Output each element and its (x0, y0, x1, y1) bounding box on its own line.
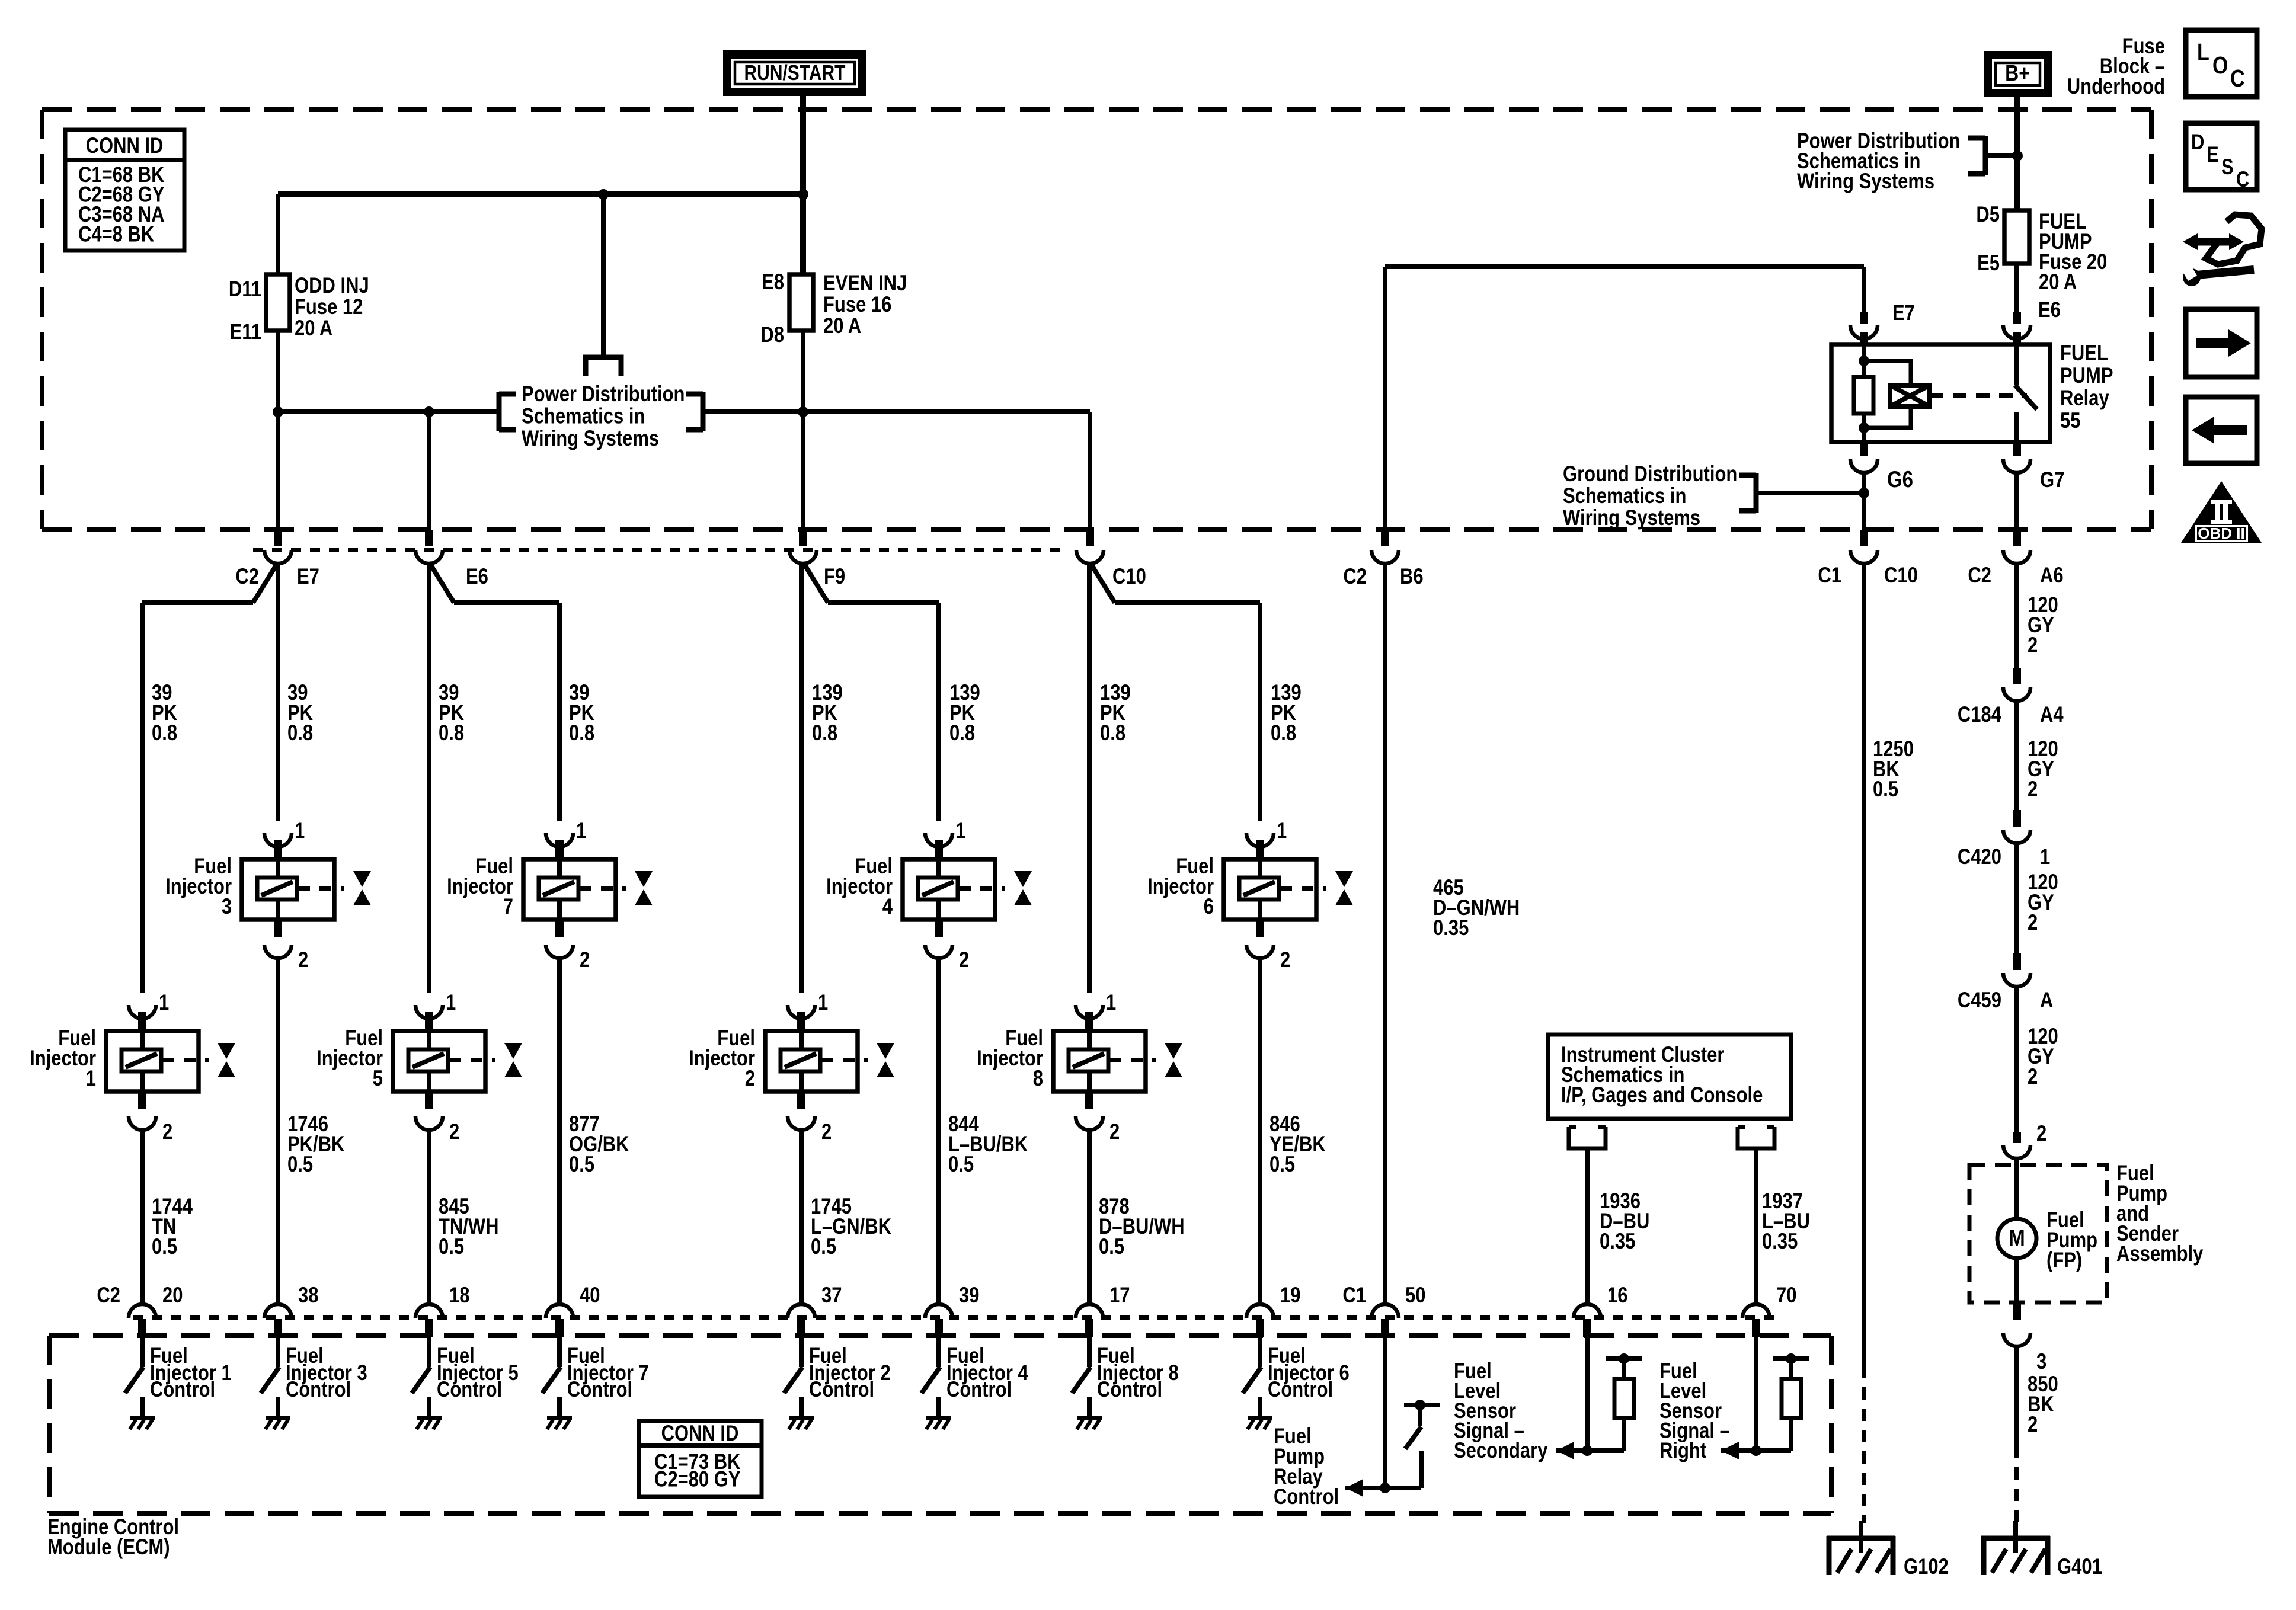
svg-text:0.5: 0.5 (1269, 1153, 1295, 1177)
svg-text:I/P, Gages and Console: I/P, Gages and Console (1561, 1083, 1763, 1108)
svg-text:16: 16 (1607, 1283, 1627, 1308)
svg-text:Schematics in: Schematics in (1563, 484, 1686, 508)
svg-text:2: 2 (2028, 1413, 2038, 1437)
svg-text:D8: D8 (760, 323, 784, 347)
svg-text:E7: E7 (297, 565, 319, 589)
svg-text:1: 1 (159, 991, 169, 1015)
svg-text:C1: C1 (1342, 1283, 1366, 1308)
svg-text:0.8: 0.8 (152, 721, 177, 745)
svg-text:ODD INJ: ODD INJ (295, 274, 369, 298)
svg-text:6: 6 (1204, 895, 1214, 919)
svg-text:O: O (2212, 52, 2228, 78)
svg-text:A4: A4 (2040, 703, 2064, 727)
svg-text:2: 2 (2028, 911, 2038, 935)
svg-text:0.5: 0.5 (287, 1153, 313, 1177)
svg-text:C10: C10 (1112, 565, 1146, 589)
svg-text:2: 2 (745, 1067, 755, 1091)
svg-text:2: 2 (2028, 777, 2038, 802)
svg-text:(FP): (FP) (2046, 1249, 2082, 1273)
svg-text:2: 2 (1109, 1120, 1120, 1144)
svg-text:40: 40 (580, 1283, 600, 1308)
svg-text:M: M (2009, 1224, 2025, 1250)
svg-text:E8: E8 (762, 270, 784, 295)
svg-text:8: 8 (1033, 1067, 1043, 1091)
svg-text:1: 1 (576, 819, 586, 843)
svg-text:Secondary: Secondary (1454, 1439, 1547, 1463)
svg-text:1: 1 (2040, 845, 2050, 869)
svg-text:20 A: 20 A (823, 314, 861, 338)
svg-text:G102: G102 (1904, 1555, 1949, 1579)
svg-text:C2: C2 (1968, 564, 1991, 588)
svg-text:0.5: 0.5 (948, 1153, 974, 1177)
svg-text:37: 37 (821, 1283, 842, 1308)
svg-text:1: 1 (1106, 991, 1116, 1015)
svg-text:1: 1 (86, 1067, 96, 1091)
svg-text:OBD II: OBD II (2198, 524, 2244, 542)
svg-text:20 A: 20 A (295, 316, 332, 341)
svg-text:0.8: 0.8 (1100, 721, 1125, 745)
svg-text:Power Distribution: Power Distribution (522, 382, 685, 406)
svg-text:C: C (2236, 168, 2249, 192)
svg-text:2: 2 (2028, 633, 2038, 658)
svg-text:2: 2 (449, 1120, 459, 1144)
svg-text:0.8: 0.8 (439, 721, 464, 745)
svg-text:2: 2 (162, 1120, 172, 1144)
svg-text:1: 1 (295, 819, 305, 843)
svg-text:E5: E5 (1977, 251, 2000, 276)
svg-text:3: 3 (222, 895, 232, 919)
svg-text:2: 2 (2028, 1065, 2038, 1089)
svg-text:Control: Control (437, 1378, 502, 1402)
svg-text:Control: Control (809, 1378, 874, 1402)
svg-text:0.5: 0.5 (569, 1153, 594, 1177)
svg-text:18: 18 (449, 1283, 469, 1308)
svg-text:0.5: 0.5 (1873, 777, 1898, 802)
svg-text:0.8: 0.8 (287, 721, 313, 745)
svg-text:E11: E11 (230, 320, 261, 344)
svg-text:17: 17 (1109, 1283, 1130, 1308)
svg-text:2: 2 (298, 948, 308, 972)
svg-text:FUEL: FUEL (2060, 341, 2108, 366)
svg-text:B6: B6 (1400, 565, 1424, 589)
svg-text:2: 2 (580, 948, 590, 972)
svg-text:RUN/START: RUN/START (744, 61, 846, 85)
svg-text:Control: Control (1097, 1378, 1162, 1402)
svg-text:0.35: 0.35 (1600, 1230, 1635, 1254)
svg-text:38: 38 (298, 1283, 318, 1308)
svg-text:4: 4 (882, 895, 893, 919)
svg-text:E: E (2207, 143, 2219, 167)
svg-text:L: L (2197, 39, 2209, 65)
svg-text:Control: Control (1268, 1378, 1333, 1402)
svg-text:CONN ID: CONN ID (86, 134, 164, 158)
svg-text:A: A (2040, 988, 2053, 1013)
svg-text:G401: G401 (2057, 1555, 2102, 1579)
svg-text:55: 55 (2060, 409, 2080, 433)
svg-text:2: 2 (821, 1120, 832, 1144)
svg-text:2: 2 (959, 948, 969, 972)
svg-text:S: S (2221, 155, 2234, 180)
svg-text:1: 1 (446, 991, 456, 1015)
svg-text:G6: G6 (1887, 466, 1913, 492)
svg-text:C2: C2 (1343, 565, 1367, 589)
svg-text:7: 7 (503, 895, 513, 919)
svg-text:Wiring Systems: Wiring Systems (522, 427, 659, 451)
svg-text:G7: G7 (2040, 468, 2064, 492)
svg-text:2: 2 (1280, 948, 1290, 972)
svg-text:Wiring Systems: Wiring Systems (1563, 506, 1700, 530)
svg-text:5: 5 (373, 1067, 383, 1091)
svg-text:Assembly: Assembly (2116, 1242, 2203, 1266)
svg-text:Control: Control (946, 1378, 1012, 1402)
svg-text:C420: C420 (1958, 845, 2001, 869)
svg-text:Underhood: Underhood (2067, 75, 2165, 99)
svg-text:20: 20 (162, 1283, 183, 1308)
svg-text:D: D (2191, 130, 2204, 155)
svg-text:0.8: 0.8 (949, 721, 975, 745)
svg-text:Schematics in: Schematics in (522, 404, 645, 428)
svg-text:0.8: 0.8 (812, 721, 837, 745)
svg-text:Ground Distribution: Ground Distribution (1563, 462, 1737, 486)
svg-text:0.5: 0.5 (1099, 1235, 1124, 1259)
svg-text:Control: Control (1274, 1485, 1339, 1509)
svg-text:C10: C10 (1884, 564, 1918, 588)
svg-text:0.8: 0.8 (569, 721, 594, 745)
svg-text:C2: C2 (97, 1283, 120, 1308)
svg-text:C459: C459 (1958, 988, 2001, 1013)
svg-text:Relay: Relay (2060, 386, 2109, 411)
svg-text:C: C (2230, 65, 2245, 91)
svg-text:0.35: 0.35 (1762, 1230, 1798, 1254)
svg-text:E6: E6 (466, 565, 488, 589)
svg-text:Control: Control (567, 1378, 632, 1402)
svg-text:Module (ECM): Module (ECM) (47, 1535, 170, 1560)
svg-text:19: 19 (1280, 1283, 1300, 1308)
svg-text:0.8: 0.8 (1271, 721, 1296, 745)
svg-text:Control: Control (150, 1378, 215, 1402)
svg-text:0.35: 0.35 (1433, 916, 1469, 940)
svg-text:Right: Right (1659, 1439, 1706, 1463)
svg-text:CONN ID: CONN ID (661, 1422, 739, 1446)
svg-text:C2: C2 (235, 565, 259, 589)
svg-text:A6: A6 (2040, 564, 2064, 588)
svg-text:50: 50 (1405, 1283, 1425, 1308)
svg-text:C1: C1 (1818, 564, 1841, 588)
svg-text:1: 1 (818, 991, 828, 1015)
svg-text:Wiring Systems: Wiring Systems (1797, 169, 1934, 194)
svg-text:39: 39 (959, 1283, 979, 1308)
svg-text:C4=8 BK: C4=8 BK (78, 222, 155, 247)
svg-text:C184: C184 (1958, 703, 2001, 727)
svg-text:20 A: 20 A (2039, 270, 2077, 295)
svg-text:0.5: 0.5 (811, 1235, 836, 1259)
svg-text:B+: B+ (2005, 60, 2030, 85)
svg-text:D11: D11 (229, 277, 261, 302)
svg-text:3: 3 (2036, 1350, 2046, 1374)
svg-text:D5: D5 (1976, 203, 2000, 227)
svg-text:2: 2 (2036, 1122, 2046, 1146)
svg-text:E7: E7 (1892, 301, 1915, 325)
svg-text:Fuse 12: Fuse 12 (295, 295, 363, 319)
svg-text:1: 1 (1277, 819, 1287, 843)
svg-text:Fuse 16: Fuse 16 (823, 293, 891, 317)
svg-text:0.5: 0.5 (152, 1235, 177, 1259)
svg-text:0.5: 0.5 (439, 1235, 464, 1259)
svg-text:PUMP: PUMP (2060, 364, 2113, 388)
svg-text:E6: E6 (2038, 298, 2061, 322)
svg-text:F9: F9 (824, 565, 845, 589)
svg-text:1: 1 (955, 819, 965, 843)
svg-text:C2=80 GY: C2=80 GY (654, 1467, 741, 1491)
svg-text:EVEN INJ: EVEN INJ (823, 271, 907, 296)
svg-text:Control: Control (286, 1378, 351, 1402)
svg-text:70: 70 (1776, 1283, 1796, 1308)
